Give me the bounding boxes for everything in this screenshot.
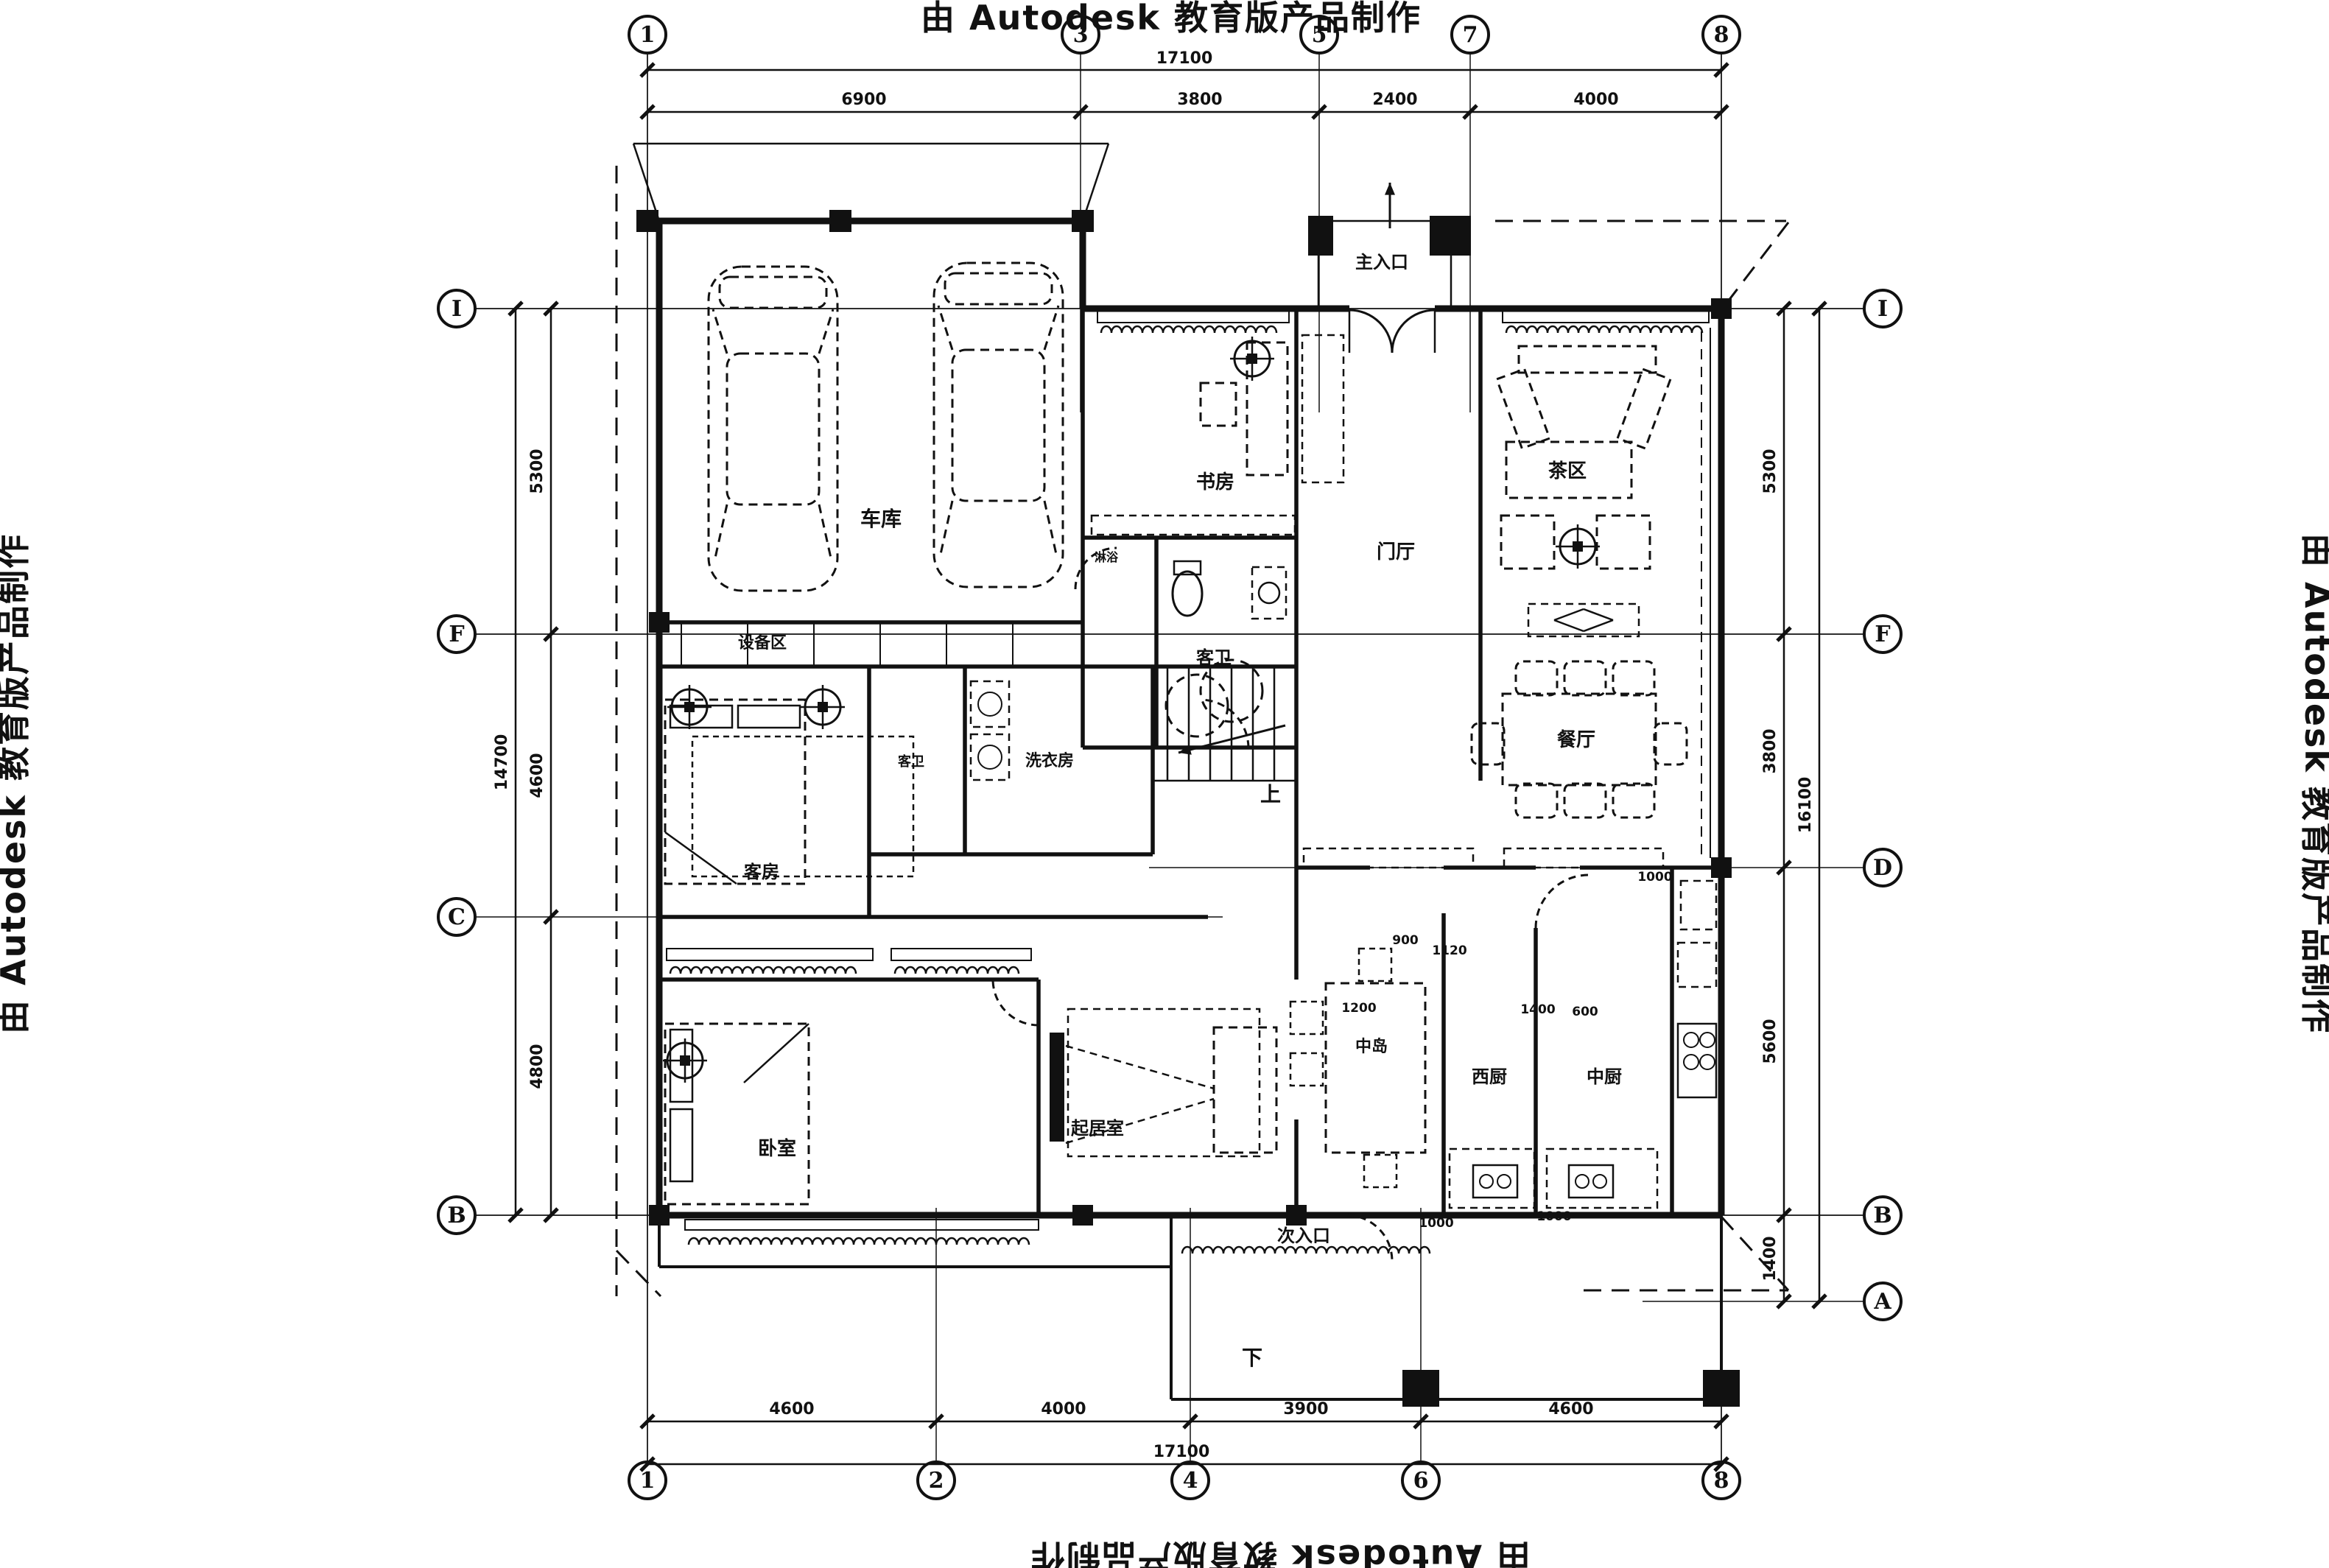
room-label-equipment-area: 设备区 (738, 633, 787, 653)
dim-bottom-overall: 17100 (1153, 1443, 1210, 1461)
room-label-guest-bath-2: 客卫 (898, 753, 924, 770)
grid-bubble-A: A (1873, 1289, 1891, 1315)
room-label-west-kitchen: 西厨 (1472, 1066, 1507, 1087)
grid-bubble-4: 4 (1183, 1468, 1198, 1494)
annotation-secondary-entrance: 次入口 (1277, 1226, 1330, 1246)
grid-bubble-I: I (452, 296, 462, 322)
watermark-left: 由 Autodesk 教育版产品制作 (0, 533, 33, 1034)
walls (636, 210, 1740, 1407)
dim-bottom-segment: 3900 (1283, 1400, 1328, 1418)
roof-overhang-lines (616, 144, 1788, 1296)
dim-top-segment: 2400 (1372, 91, 1417, 109)
room-label-dining-room: 餐厅 (1557, 729, 1595, 751)
annotation-stair-down: 下 (1242, 1346, 1262, 1370)
grid-bubble-8: 8 (1714, 22, 1729, 48)
watermark-right: 由 Autodesk 教育版产品制作 (2297, 533, 2329, 1034)
room-label-island: 中岛 (1355, 1037, 1388, 1056)
stairs (1153, 660, 1296, 781)
dim-interior: 600 (1572, 1005, 1598, 1019)
grid-bubble-1: 1 (640, 22, 656, 48)
dim-top-segment: 4000 (1573, 91, 1618, 109)
room-label-study: 书房 (1196, 471, 1234, 493)
grid-bubble-F: F (1875, 622, 1890, 647)
dim-right-segment: 3800 (1761, 728, 1780, 773)
grid-bubble-D: D (1873, 855, 1892, 881)
dim-left-segment: 4600 (528, 753, 547, 798)
windows (667, 311, 1719, 1254)
grid-bubble-B: B (1873, 1203, 1891, 1228)
dim-right-segment: 5600 (1761, 1019, 1780, 1064)
dim-bottom-segment: 4000 (1041, 1400, 1086, 1418)
annotation-main-entrance: 主入口 (1355, 252, 1408, 273)
dim-bottom-segment: 4600 (1548, 1400, 1593, 1418)
room-label-living-room: 起居室 (1070, 1118, 1124, 1139)
room-label-bedroom: 卧室 (758, 1137, 796, 1160)
grid-bubble-F: F (449, 622, 464, 647)
room-label-chinese-kitchen: 中厨 (1587, 1066, 1622, 1087)
watermarks: 由 Autodesk 教育版产品制作由 Autodesk 教育版产品制作由 Au… (0, 0, 2329, 1568)
dim-left-overall: 14700 (493, 734, 511, 791)
grid-bubble-6: 6 (1413, 1468, 1429, 1494)
room-label-guest-bath: 客卫 (1196, 647, 1232, 668)
floor-plan-svg: 1357812468IFCBIFDBA171006900380024004000… (0, 0, 2329, 1568)
dim-bottom-segment: 4600 (769, 1400, 814, 1418)
grid-bubble-7: 7 (1463, 22, 1478, 48)
dim-interior: 1000 (1637, 870, 1672, 885)
dim-interior: 1400 (1520, 1002, 1555, 1017)
cad-floor-plan-viewport: 1357812468IFCBIFDBA171006900380024004000… (0, 0, 2329, 1568)
dim-interior: 1200 (1341, 1001, 1376, 1016)
annotation-stair-up: 上 (1260, 782, 1281, 806)
room-label-garage: 车库 (860, 507, 902, 531)
dim-interior: 900 (1392, 933, 1419, 948)
dim-top-segment: 3800 (1177, 91, 1222, 109)
grid-bubble-C: C (448, 904, 466, 930)
dim-top-segment: 6900 (841, 91, 886, 109)
grid-lines (474, 52, 1864, 1463)
dim-right-segment: 5300 (1761, 449, 1780, 493)
dim-interior: 1120 (1432, 943, 1466, 958)
dim-top-overall: 17100 (1156, 49, 1213, 68)
room-label-guest-room: 客房 (744, 862, 779, 882)
room-label-laundry: 洗衣房 (1025, 751, 1074, 770)
dimension-chains: 1710069003800240040004600400039004600171… (493, 49, 1826, 1471)
dim-left-segment: 4800 (528, 1044, 547, 1089)
dim-left-segment: 5300 (528, 449, 547, 493)
watermark-bottom: 由 Autodesk 教育版产品制作 (1030, 1537, 1531, 1568)
grid-bubble-2: 2 (929, 1468, 944, 1494)
room-label-tea-area: 茶区 (1548, 460, 1587, 482)
room-label-shower: 淋浴 (1095, 550, 1119, 564)
watermark-top: 由 Autodesk 教育版产品制作 (921, 0, 1422, 38)
dim-right-segment: 1400 (1761, 1236, 1780, 1281)
grid-bubble-I: I (1877, 296, 1888, 322)
room-label-foyer: 门厅 (1377, 541, 1415, 563)
dim-right-overall: 16100 (1796, 777, 1815, 834)
grid-bubble-B: B (447, 1203, 466, 1228)
